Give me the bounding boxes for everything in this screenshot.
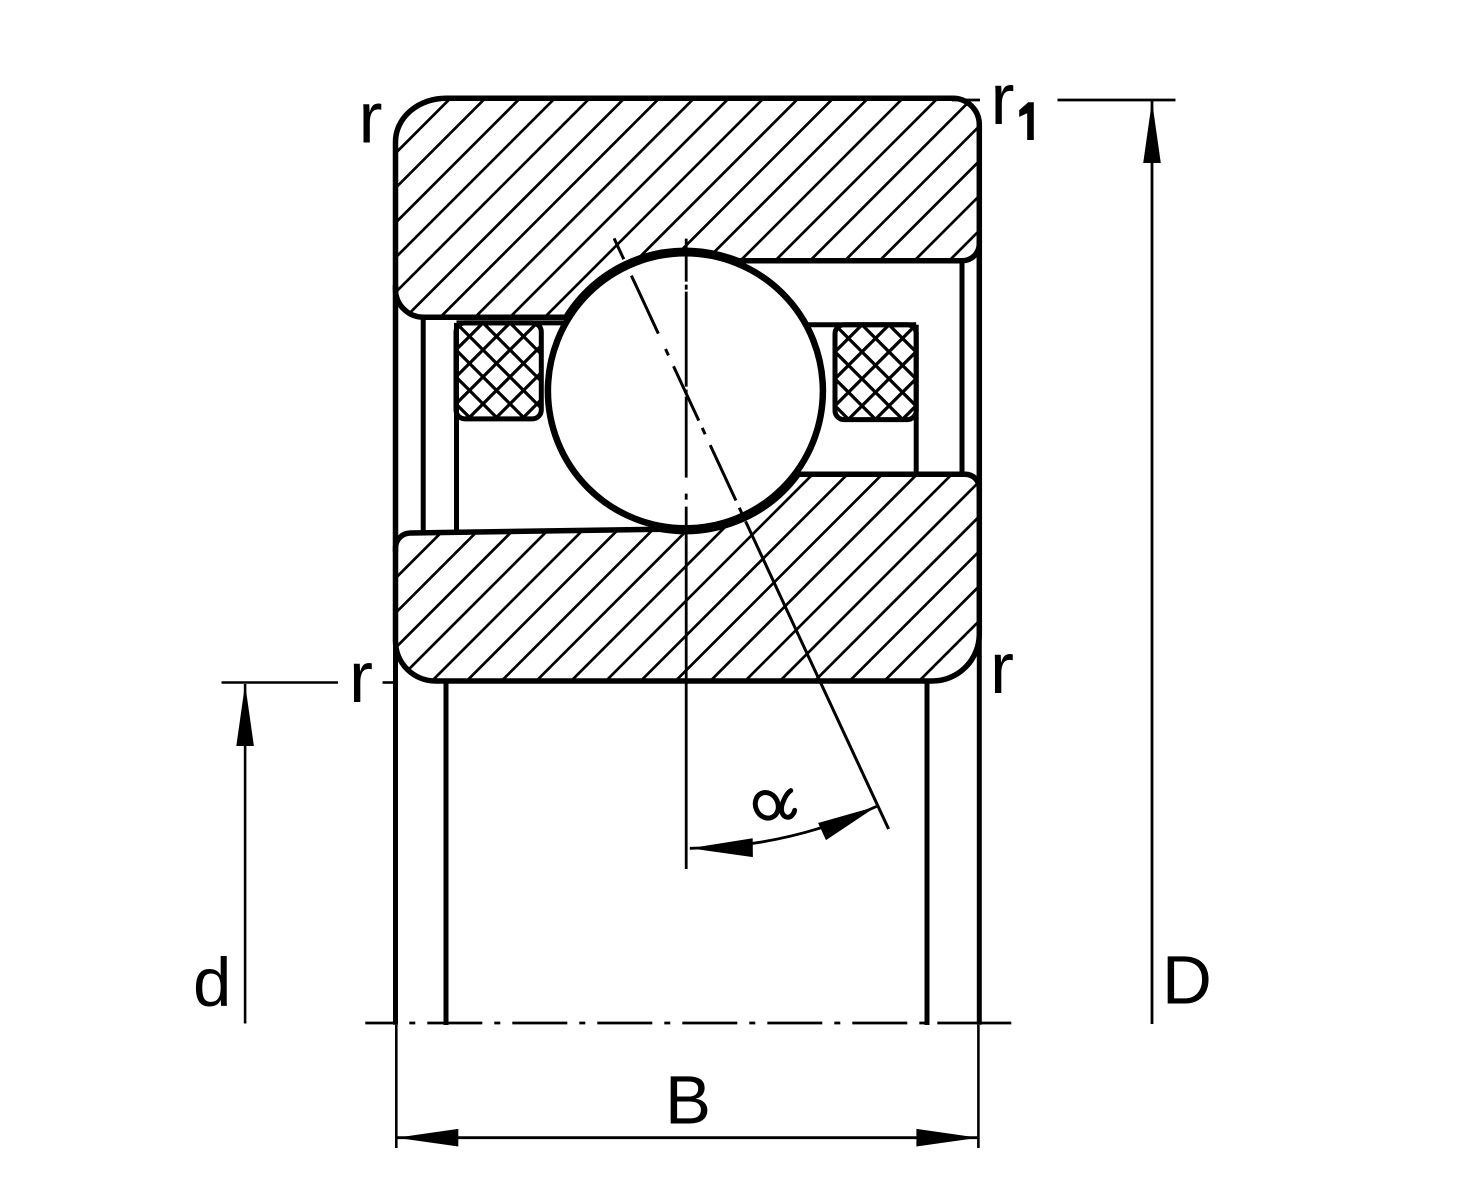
svg-text:D: D	[1162, 942, 1212, 1019]
svg-text:r: r	[990, 629, 1014, 709]
svg-text:r: r	[359, 79, 383, 159]
svg-text:r: r	[991, 60, 1015, 140]
svg-text:B: B	[665, 1061, 711, 1138]
svg-text:r: r	[349, 638, 373, 718]
svg-text:d: d	[193, 944, 231, 1021]
